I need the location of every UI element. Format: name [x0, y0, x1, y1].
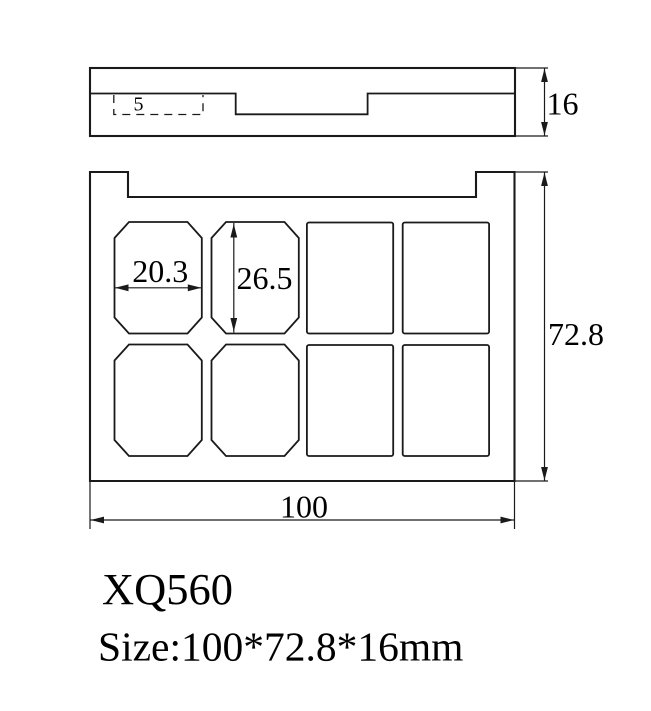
svg-text:26.5: 26.5 [237, 260, 293, 296]
svg-text:5: 5 [134, 94, 144, 116]
svg-text:72.8: 72.8 [548, 316, 604, 352]
svg-text:Size:100*72.8*16mm: Size:100*72.8*16mm [98, 624, 463, 670]
svg-text:XQ560: XQ560 [102, 564, 233, 614]
svg-text:20.3: 20.3 [132, 253, 188, 289]
svg-text:100: 100 [280, 489, 328, 525]
svg-text:16: 16 [547, 86, 579, 122]
